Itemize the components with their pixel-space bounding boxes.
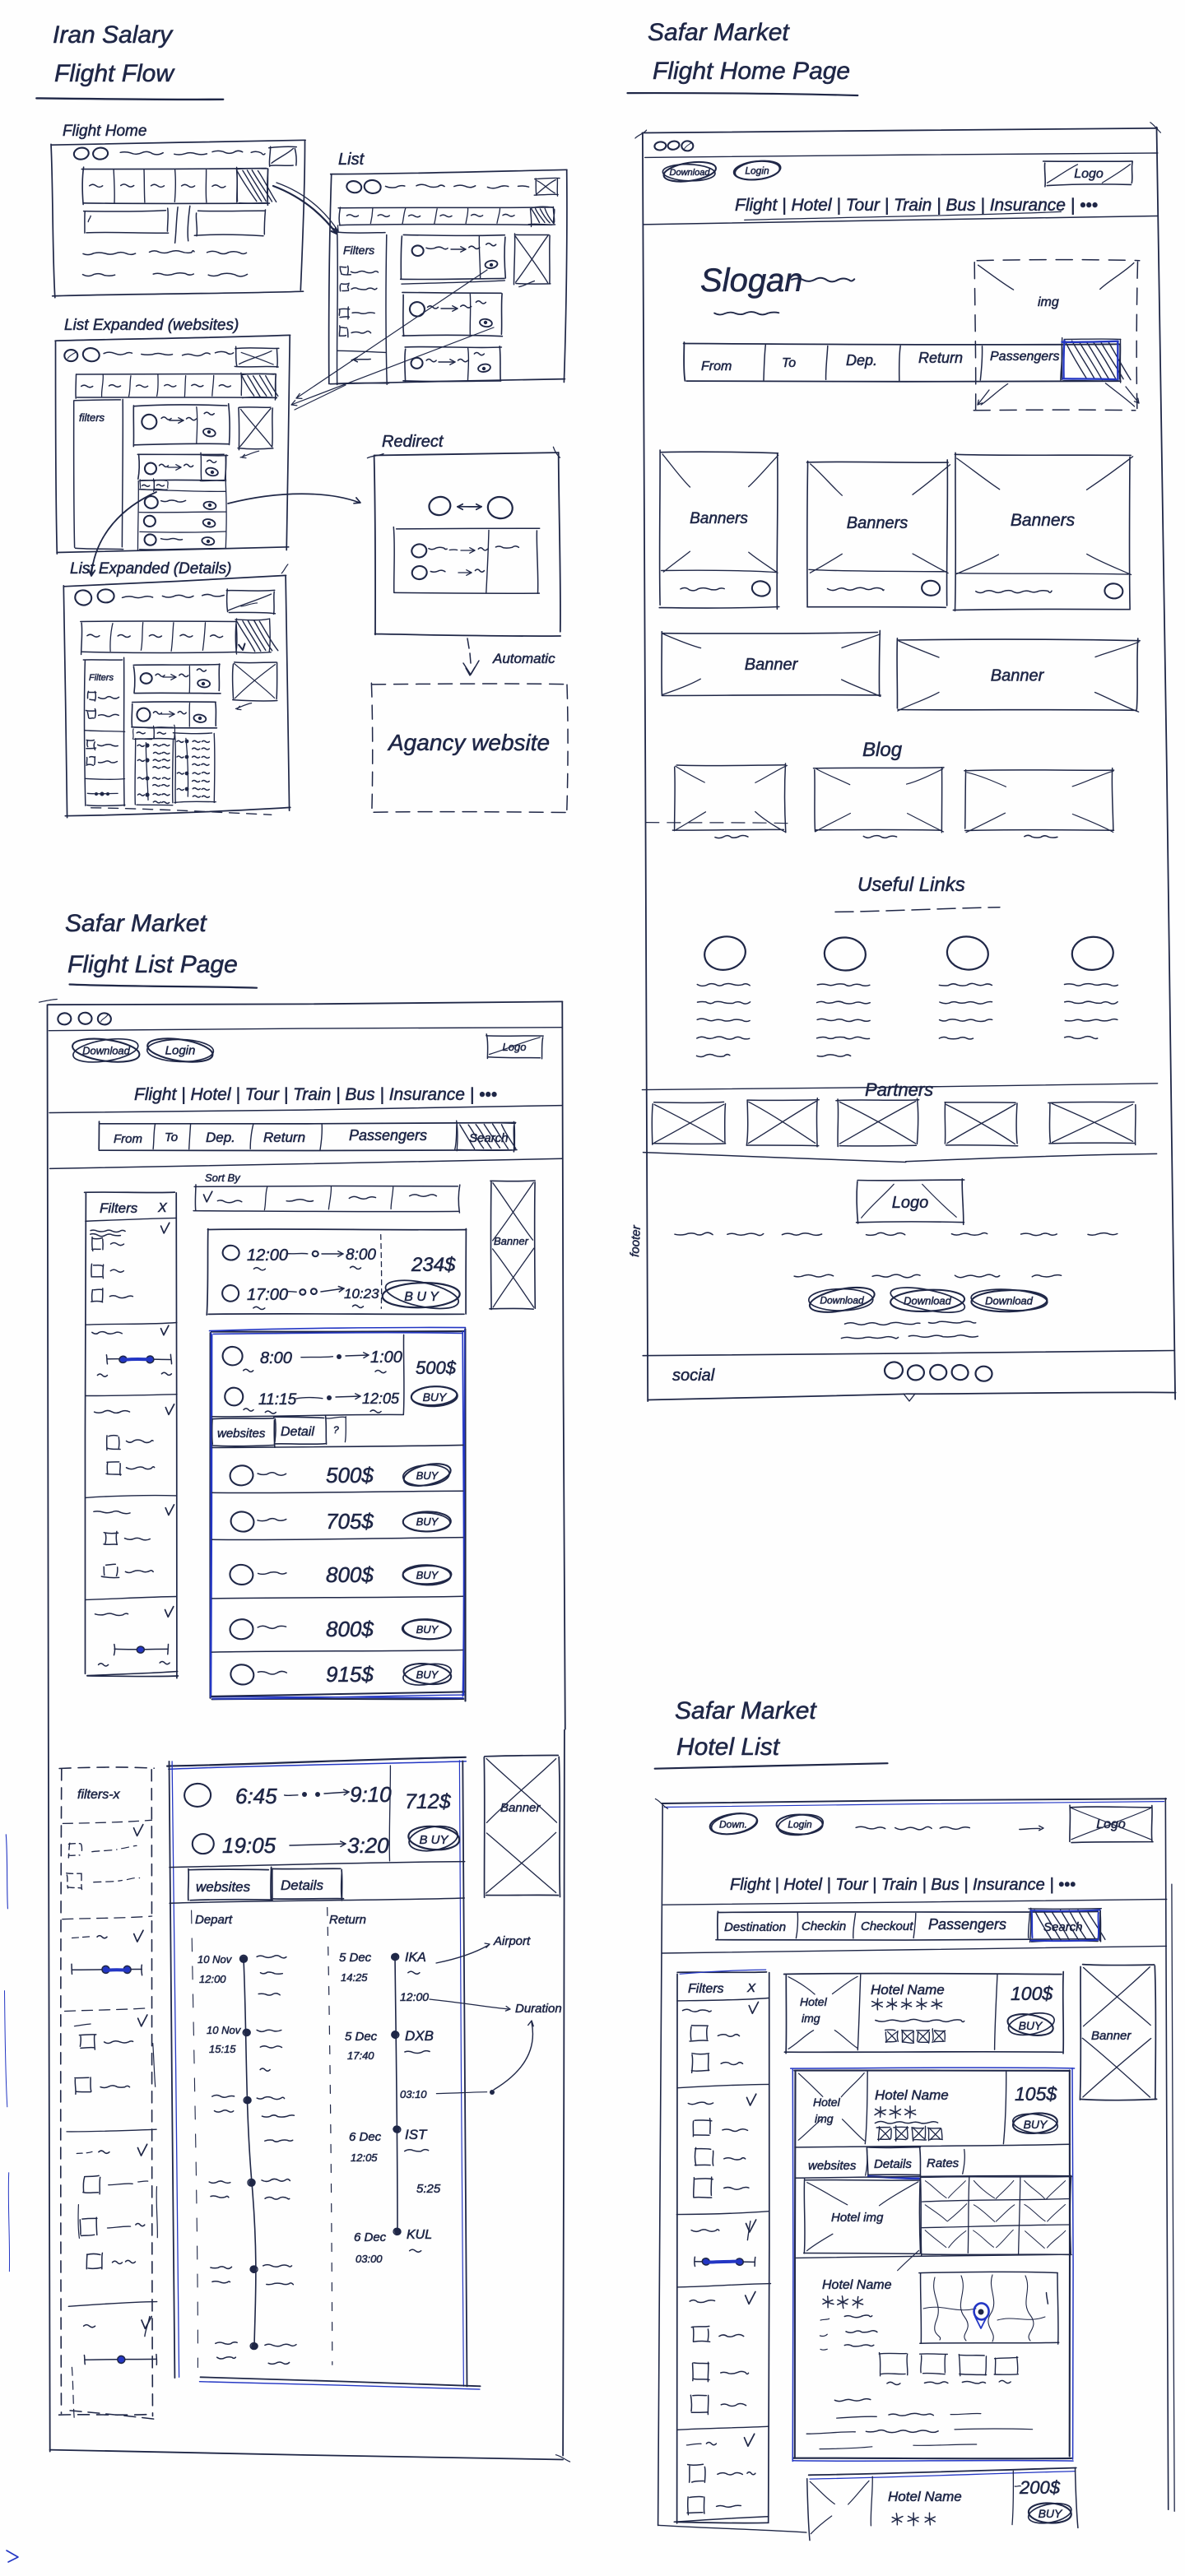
svg-text:IST: IST xyxy=(405,2127,428,2142)
svg-text:105$: 105$ xyxy=(1015,2083,1057,2105)
svg-text:Search: Search xyxy=(1043,1920,1083,1934)
svg-text:8:00: 8:00 xyxy=(346,1246,376,1264)
svg-text:Redirect: Redirect xyxy=(382,433,444,451)
svg-text:Banners: Banners xyxy=(690,510,748,527)
svg-text:Banner: Banner xyxy=(494,1235,529,1247)
svg-text:BUY: BUY xyxy=(1024,2118,1048,2131)
svg-text:Airport: Airport xyxy=(493,1934,531,1948)
svg-text:5:25: 5:25 xyxy=(416,2182,441,2196)
svg-text:Filters: Filters xyxy=(343,244,374,257)
svg-text:Logo: Logo xyxy=(892,1194,929,1212)
svg-text:5 Dec: 5 Dec xyxy=(339,1951,372,1965)
svg-text:Search: Search xyxy=(469,1131,509,1145)
svg-text:14:25: 14:25 xyxy=(341,1971,368,1984)
svg-text:800$: 800$ xyxy=(326,1617,374,1641)
svg-text:BUY: BUY xyxy=(416,1569,439,1581)
svg-text:X: X xyxy=(157,1201,168,1215)
svg-text:17:00: 17:00 xyxy=(247,1286,288,1304)
svg-text:Banner: Banner xyxy=(991,667,1045,685)
svg-text:Logo: Logo xyxy=(503,1041,527,1053)
svg-text:234$: 234$ xyxy=(411,1254,456,1276)
svg-text:B UY: B UY xyxy=(419,1833,448,1847)
svg-text:img: img xyxy=(802,2012,820,2025)
svg-text:footer: footer xyxy=(628,1224,644,1257)
svg-text:800$: 800$ xyxy=(326,1562,374,1587)
svg-text:500$: 500$ xyxy=(326,1463,374,1488)
svg-text:Login: Login xyxy=(788,1818,812,1830)
svg-text:Passengers: Passengers xyxy=(349,1127,427,1144)
svg-text:Filters: Filters xyxy=(100,1200,138,1216)
svg-text:Hotel Name: Hotel Name xyxy=(822,2278,892,2292)
svg-text:BUY: BUY xyxy=(416,1515,439,1528)
svg-text:Down.: Down. xyxy=(719,1818,747,1830)
svg-text:Hotel Name: Hotel Name xyxy=(871,1982,945,1998)
svg-text:Flight List Page: Flight List Page xyxy=(67,951,238,978)
svg-text:Details: Details xyxy=(281,1877,323,1893)
svg-text:1:00: 1:00 xyxy=(370,1348,402,1367)
svg-text:List Expanded (Details): List Expanded (Details) xyxy=(70,560,231,578)
svg-text:Hotel Name: Hotel Name xyxy=(875,2087,949,2103)
svg-text:BUY: BUY xyxy=(416,1469,439,1482)
svg-text:Flight Flow: Flight Flow xyxy=(54,60,175,87)
svg-text:Hotel List: Hotel List xyxy=(676,1734,781,1761)
svg-text:websites: websites xyxy=(217,1427,266,1441)
svg-text:12:05: 12:05 xyxy=(351,2151,378,2164)
svg-text:Filters: Filters xyxy=(688,1982,724,1996)
svg-text:8:00: 8:00 xyxy=(260,1349,292,1367)
svg-text:Duration: Duration xyxy=(515,2002,562,2016)
svg-text:Return: Return xyxy=(918,350,963,366)
svg-text:Login: Login xyxy=(165,1043,196,1057)
svg-text:Hotel: Hotel xyxy=(813,2096,841,2109)
svg-text:Automatic: Automatic xyxy=(492,651,555,666)
svg-text:List: List xyxy=(338,151,365,169)
svg-text:websites: websites xyxy=(808,2159,857,2173)
svg-text:BUY: BUY xyxy=(1019,2019,1043,2032)
svg-text:Slogan: Slogan xyxy=(700,262,803,299)
svg-text:500$: 500$ xyxy=(416,1358,457,1378)
svg-text:Hotel: Hotel xyxy=(800,1995,828,2008)
svg-text:Flight Home Page: Flight Home Page xyxy=(653,58,850,85)
svg-text:Hotel Name: Hotel Name xyxy=(888,2489,962,2504)
svg-text:Flight | Hotel | Tour | Train: Flight | Hotel | Tour | Train | Bus | In… xyxy=(730,1876,1076,1894)
svg-text:To: To xyxy=(165,1130,178,1144)
svg-text:filters-x: filters-x xyxy=(77,1788,121,1802)
svg-text:From: From xyxy=(114,1132,142,1146)
svg-text:11:15: 11:15 xyxy=(258,1391,297,1409)
svg-text:social: social xyxy=(672,1367,715,1385)
svg-text:B U Y: B U Y xyxy=(404,1290,439,1304)
svg-text:Banner: Banner xyxy=(500,1801,541,1815)
svg-text:Download: Download xyxy=(985,1295,1034,1307)
svg-text:filters: filters xyxy=(79,411,105,424)
svg-text:Details: Details xyxy=(874,2157,912,2171)
svg-text:Return: Return xyxy=(329,1913,366,1927)
svg-text:Passengers: Passengers xyxy=(990,350,1060,364)
svg-text:Checkout: Checkout xyxy=(861,1919,913,1933)
svg-text:Logo: Logo xyxy=(1074,167,1104,181)
svg-text:5 Dec: 5 Dec xyxy=(345,2030,378,2044)
svg-text:websites: websites xyxy=(196,1879,251,1895)
svg-text:BUY: BUY xyxy=(423,1390,448,1404)
svg-text:List Expanded (websites): List Expanded (websites) xyxy=(64,317,239,334)
svg-text:3:20: 3:20 xyxy=(347,1833,389,1858)
svg-text:X: X xyxy=(746,1981,756,1995)
svg-text:KUL: KUL xyxy=(407,2228,432,2242)
svg-text:6 Dec: 6 Dec xyxy=(349,2130,382,2144)
svg-text:19:05: 19:05 xyxy=(222,1833,276,1858)
svg-text:BUY: BUY xyxy=(416,1669,439,1681)
svg-text:10:23: 10:23 xyxy=(344,1286,379,1302)
svg-text:10 Nov: 10 Nov xyxy=(197,1953,233,1966)
svg-text:915$: 915$ xyxy=(326,1662,374,1687)
svg-text:10 Nov: 10 Nov xyxy=(207,2024,242,2036)
svg-text:BUY: BUY xyxy=(1039,2507,1063,2520)
svg-text:17:40: 17:40 xyxy=(347,2049,374,2062)
svg-text:Blog: Blog xyxy=(862,739,903,761)
svg-text:Checkin: Checkin xyxy=(802,1919,846,1933)
svg-text:Filters: Filters xyxy=(89,673,114,683)
svg-text:12:00: 12:00 xyxy=(199,1973,226,1985)
svg-text:Hotel img: Hotel img xyxy=(831,2211,884,2225)
svg-text:Safar Market: Safar Market xyxy=(65,910,207,937)
svg-text:Download: Download xyxy=(820,1294,864,1306)
svg-text:705$: 705$ xyxy=(326,1509,374,1534)
svg-text:12:00: 12:00 xyxy=(400,1990,429,2003)
svg-text:100$: 100$ xyxy=(1011,1983,1053,2004)
svg-text:?: ? xyxy=(333,1424,339,1436)
svg-text:Download: Download xyxy=(82,1045,131,1057)
svg-text:200$: 200$ xyxy=(1019,2477,1061,2498)
svg-text:712$: 712$ xyxy=(405,1790,452,1813)
svg-text:6 Dec: 6 Dec xyxy=(354,2230,387,2244)
svg-text:DXB: DXB xyxy=(405,2028,434,2044)
svg-text:Flight | Hotel | Tour | Train: Flight | Hotel | Tour | Train | Bus | In… xyxy=(735,196,1098,215)
svg-text:Sort By: Sort By xyxy=(205,1172,241,1184)
svg-text:Flight | Hotel | Tour | Train: Flight | Hotel | Tour | Train | Bus | In… xyxy=(134,1085,497,1104)
svg-text:03:10: 03:10 xyxy=(400,2088,427,2100)
svg-text:12:00: 12:00 xyxy=(247,1246,288,1265)
svg-text:img: img xyxy=(815,2112,834,2125)
svg-text:From: From xyxy=(701,360,732,374)
svg-text:Depart: Depart xyxy=(195,1913,233,1927)
svg-text:15:15: 15:15 xyxy=(209,2043,236,2055)
svg-text:Rates: Rates xyxy=(927,2156,960,2170)
svg-text:Partners: Partners xyxy=(865,1079,933,1100)
svg-text:Dep.: Dep. xyxy=(846,352,877,369)
svg-text:Useful Links: Useful Links xyxy=(857,874,965,896)
svg-text:Banner: Banner xyxy=(745,656,799,674)
svg-text:Safar Market: Safar Market xyxy=(648,19,790,46)
svg-text:img: img xyxy=(1038,295,1059,309)
svg-text:Download: Download xyxy=(670,168,711,178)
svg-text:Banners: Banners xyxy=(847,514,908,532)
svg-text:BUY: BUY xyxy=(416,1623,439,1636)
svg-text:Destination: Destination xyxy=(724,1920,786,1934)
svg-text:To: To xyxy=(782,356,796,370)
svg-text:Agancy website: Agancy website xyxy=(387,730,550,755)
svg-text:Iran Salary: Iran Salary xyxy=(53,21,174,49)
svg-text:Safar Market: Safar Market xyxy=(675,1697,817,1724)
svg-text:Banner: Banner xyxy=(1091,2029,1132,2043)
svg-text:Logo: Logo xyxy=(1096,1817,1126,1831)
svg-text:12:05: 12:05 xyxy=(362,1390,400,1407)
svg-text:IKA: IKA xyxy=(405,1951,426,1965)
svg-text:Banners: Banners xyxy=(1011,511,1076,530)
svg-text:Passengers: Passengers xyxy=(928,1916,1006,1933)
svg-text:Dep.: Dep. xyxy=(206,1130,235,1145)
svg-text:Login: Login xyxy=(745,165,769,176)
svg-text:Return: Return xyxy=(263,1130,305,1145)
svg-text:Flight Home: Flight Home xyxy=(63,123,146,140)
svg-text:03:00: 03:00 xyxy=(355,2253,383,2265)
svg-text:Download: Download xyxy=(904,1295,952,1307)
svg-text:6:45: 6:45 xyxy=(235,1784,277,1808)
svg-text:Detail: Detail xyxy=(281,1425,314,1439)
svg-text:9:10: 9:10 xyxy=(350,1782,392,1807)
